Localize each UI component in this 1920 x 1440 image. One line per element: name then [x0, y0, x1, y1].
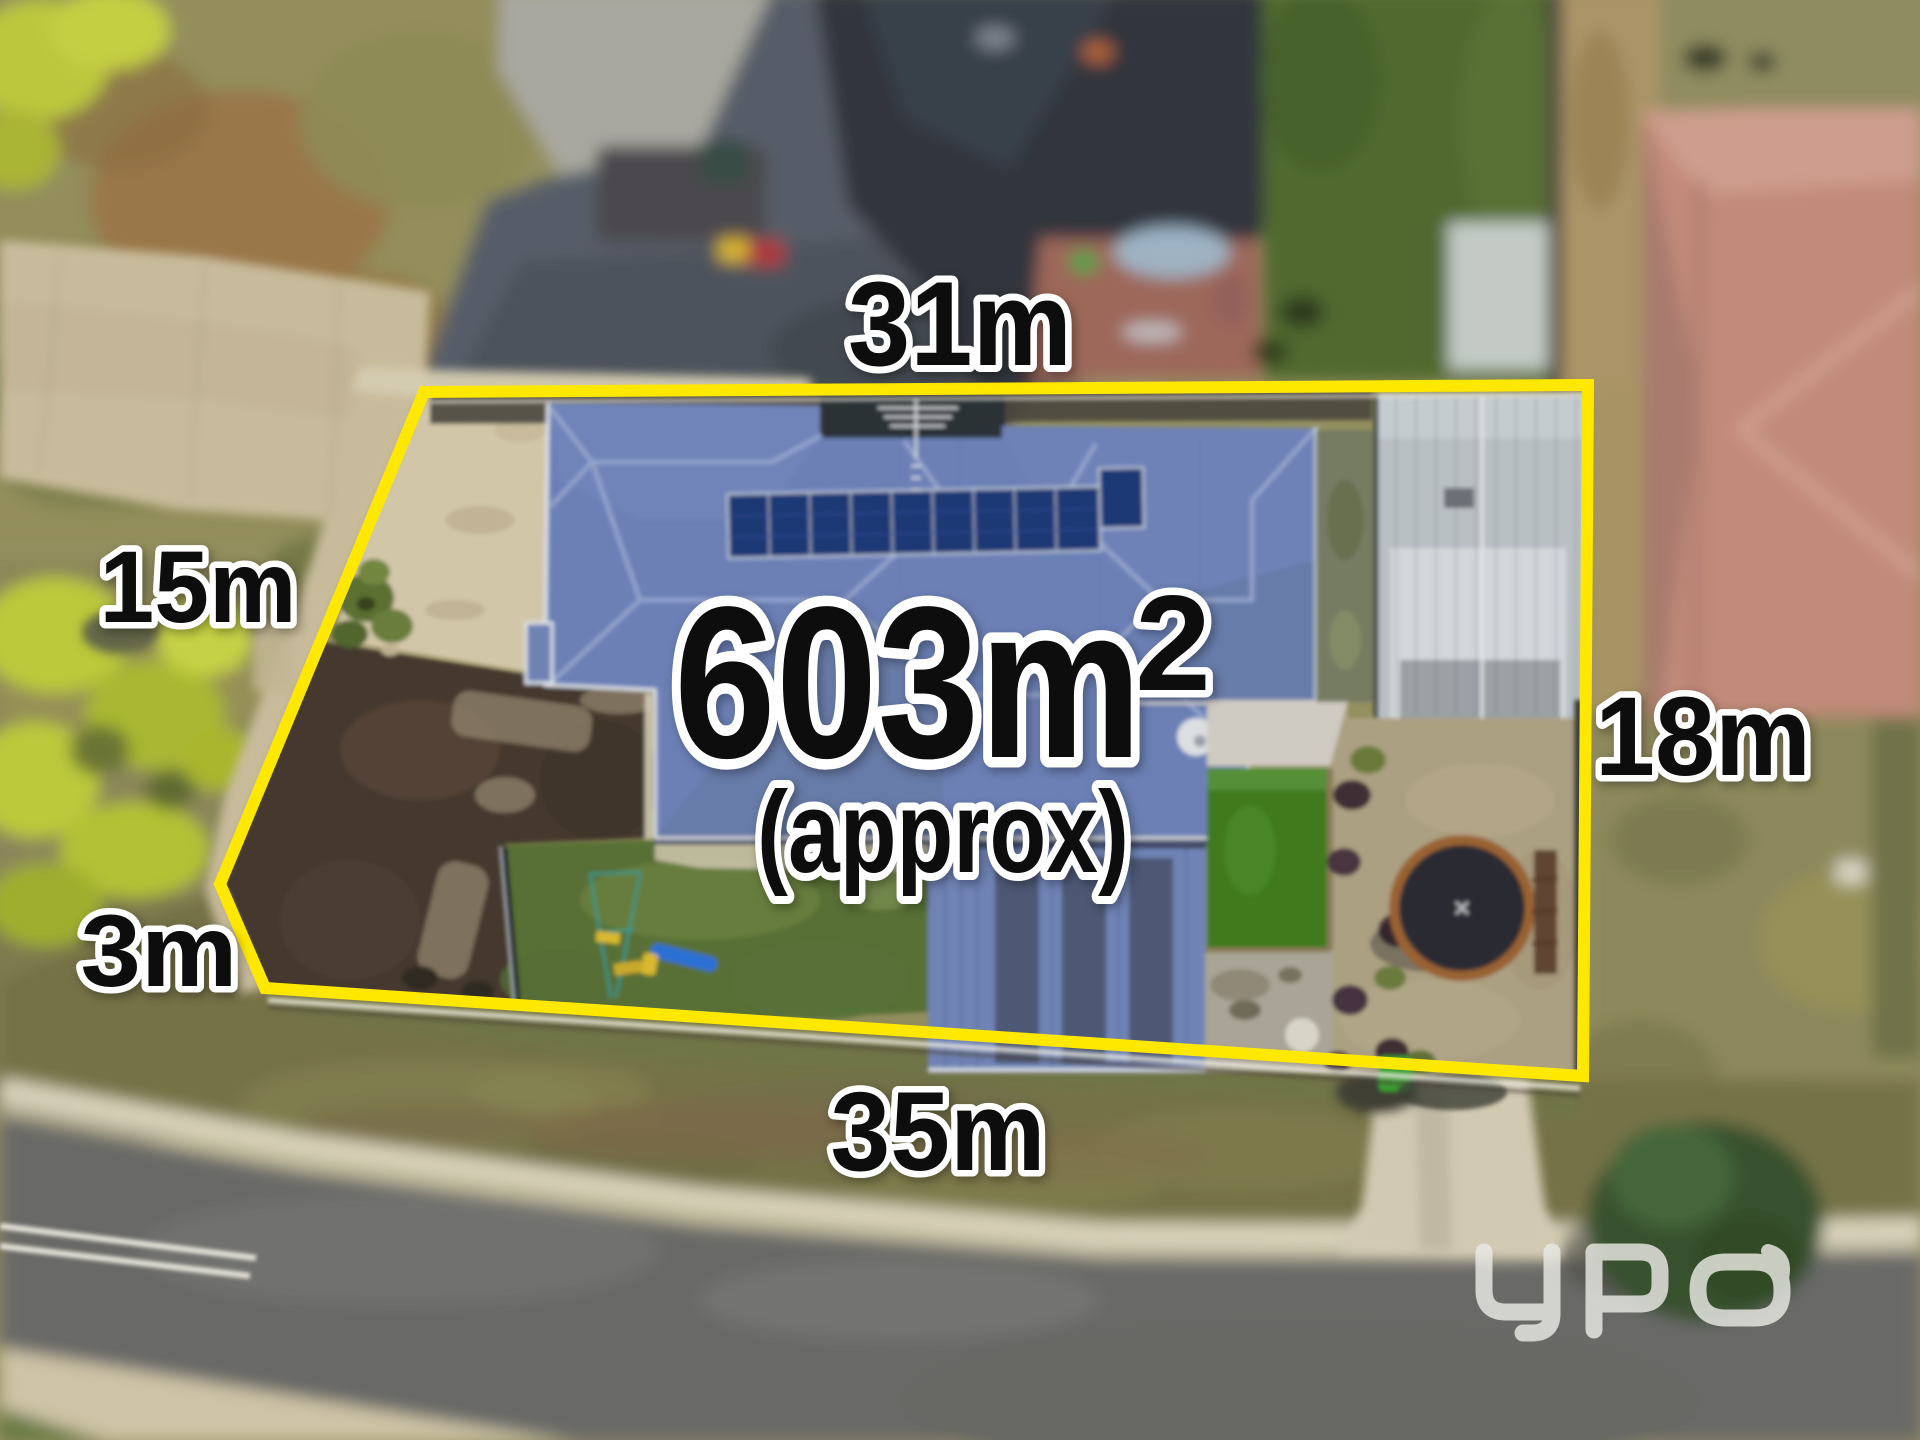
svg-text:2: 2	[1135, 567, 1211, 719]
svg-text:(approx): (approx)	[757, 767, 1129, 897]
svg-text:15m: 15m	[100, 530, 297, 644]
svg-text:35m: 35m	[831, 1069, 1046, 1194]
svg-text:31m: 31m	[848, 257, 1072, 391]
svg-text:18m: 18m	[1595, 674, 1811, 799]
svg-text:3m: 3m	[81, 894, 238, 1008]
